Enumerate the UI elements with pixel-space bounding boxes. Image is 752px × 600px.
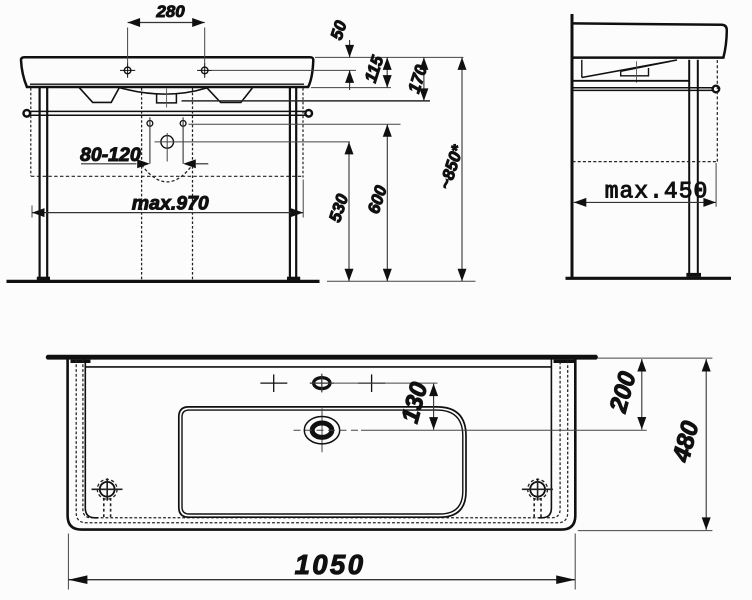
svg-text:80-120: 80-120	[80, 144, 141, 166]
svg-text:max.970: max.970	[132, 193, 209, 215]
svg-text:1050: 1050	[295, 549, 366, 580]
svg-text:280: 280	[155, 2, 185, 21]
svg-text:max.450: max.450	[605, 179, 709, 205]
